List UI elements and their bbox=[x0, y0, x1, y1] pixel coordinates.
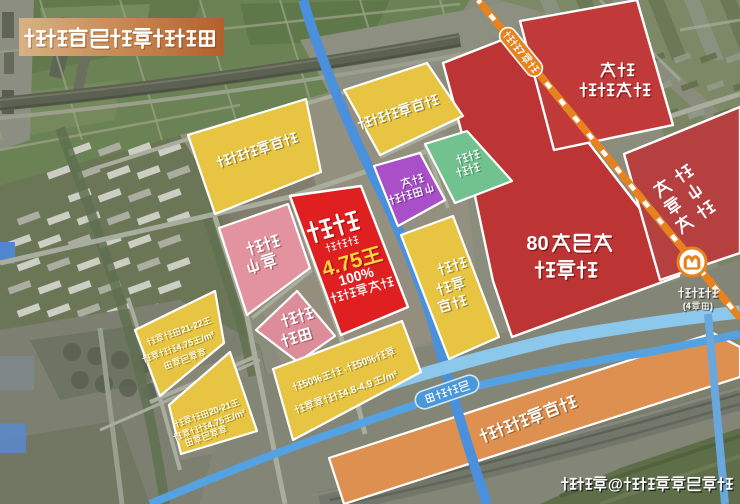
svg-text:80: 80 bbox=[526, 233, 548, 255]
svg-text:(4: (4 bbox=[683, 301, 691, 311]
svg-text:@: @ bbox=[608, 476, 623, 493]
svg-text:): ) bbox=[710, 301, 713, 311]
